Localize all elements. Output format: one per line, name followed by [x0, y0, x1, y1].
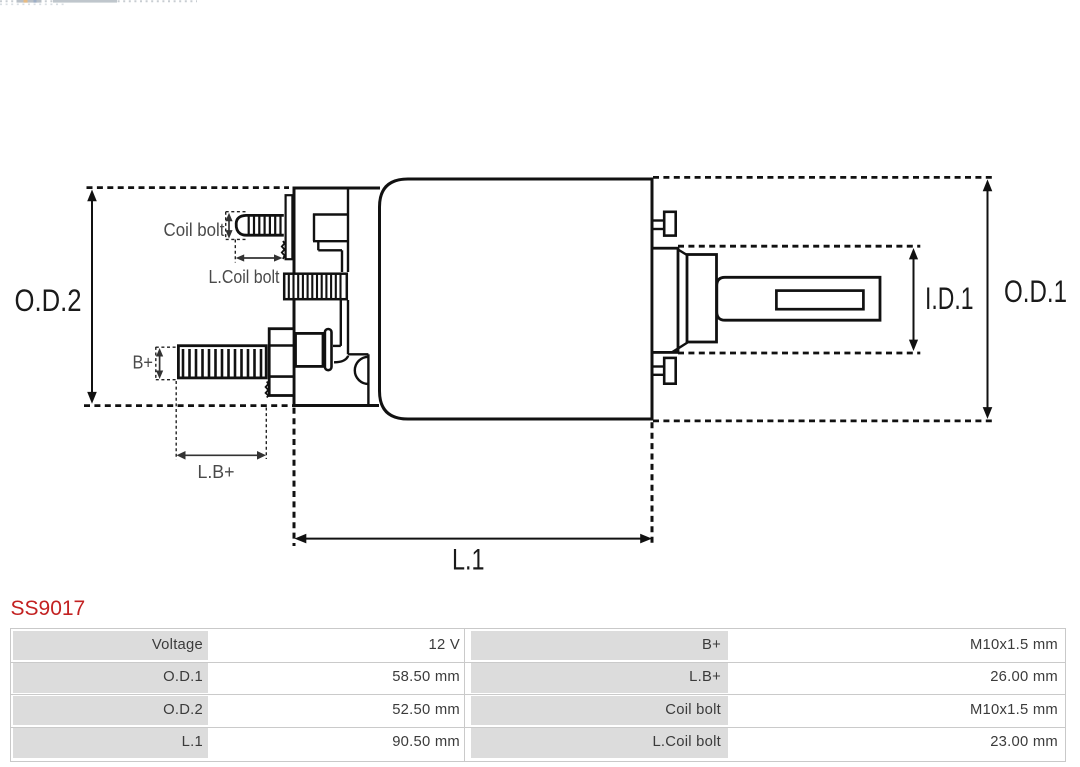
svg-text:B+: B+ — [133, 352, 154, 372]
svg-text:L.1: L.1 — [452, 544, 485, 577]
svg-text:L.Coil bolt: L.Coil bolt — [209, 267, 280, 287]
svg-text:Coil bolt: Coil bolt — [164, 220, 225, 240]
svg-text:L.B+: L.B+ — [198, 462, 235, 482]
svg-text:O.D.1: O.D.1 — [1004, 273, 1067, 309]
svg-text:O.D.2: O.D.2 — [15, 282, 82, 318]
svg-text:I.D.1: I.D.1 — [925, 280, 974, 316]
